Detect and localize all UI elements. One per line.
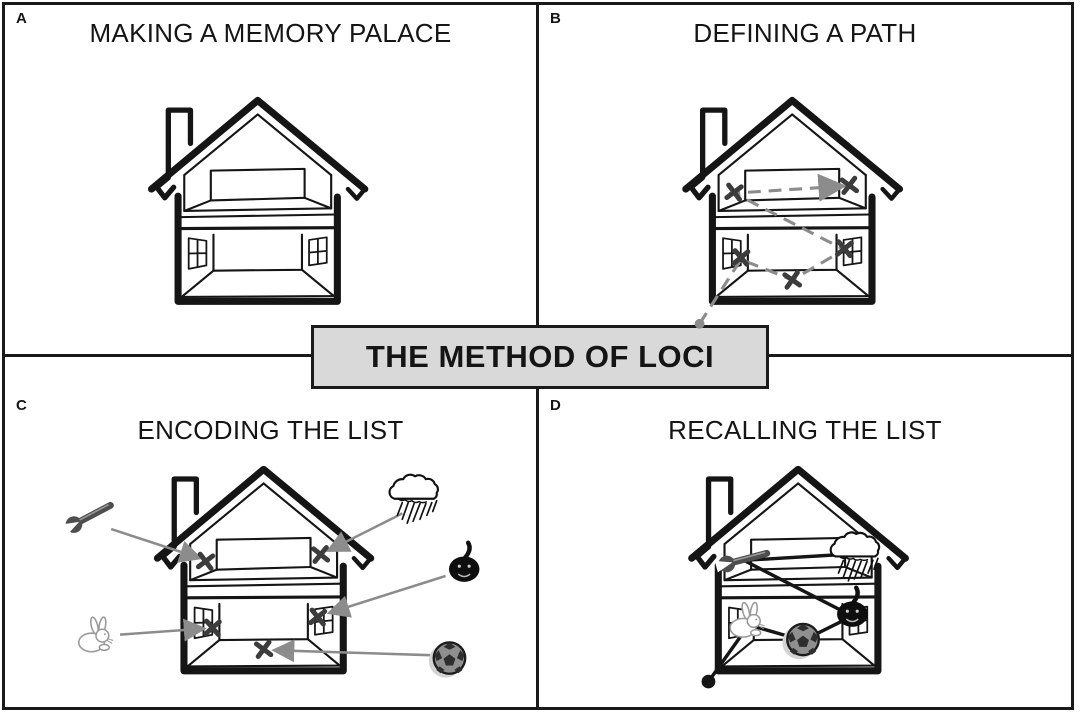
soccer-ball-icon [429, 642, 465, 677]
storm-cloud-icon [390, 475, 438, 523]
panel-c-drawing [5, 357, 536, 707]
panel-d: D RECALLING THE LIST [539, 357, 1071, 707]
x-mark-icon [785, 273, 800, 288]
path-start-dot [702, 675, 716, 689]
rabbit-icon [730, 602, 764, 637]
pumpkin-icon [837, 588, 868, 627]
panel-c-title: ENCODING THE LIST [5, 415, 536, 446]
house-icon [686, 100, 900, 301]
arrow-pumpkin-to-locus [331, 576, 445, 612]
x-mark-icon [314, 548, 328, 562]
rabbit-icon [79, 617, 113, 652]
panel-b: B DEFINING A PATH [539, 5, 1071, 354]
panel-b-title: DEFINING A PATH [539, 18, 1071, 49]
arrow-rabbit-to-locus [120, 629, 202, 635]
memory-path-solid [708, 554, 859, 682]
house-icon [157, 469, 370, 670]
figure-frame: A MAKING A MEMORY PALACE B DEFINING A PA… [2, 2, 1074, 710]
x-mark-icon [256, 642, 270, 656]
pumpkin-icon [449, 543, 479, 582]
panel-c: C ENCODING THE LIST [5, 357, 536, 707]
panel-a-drawing [5, 5, 536, 354]
panel-d-letter: D [550, 397, 561, 414]
arrow-ball-to-locus [276, 650, 430, 655]
panel-d-drawing [539, 357, 1071, 707]
panel-d-title: RECALLING THE LIST [539, 415, 1071, 446]
x-mark-icon [842, 178, 856, 192]
panel-c-letter: C [16, 397, 27, 414]
panel-b-drawing [539, 5, 1071, 354]
panel-a: A MAKING A MEMORY PALACE [5, 5, 536, 354]
x-mark-icon [198, 554, 212, 568]
wrench-icon [60, 498, 114, 537]
path-start-dot [695, 319, 705, 329]
soccer-ball-icon [782, 624, 818, 659]
house-icon [152, 100, 365, 301]
panel-a-title: MAKING A MEMORY PALACE [5, 18, 536, 49]
